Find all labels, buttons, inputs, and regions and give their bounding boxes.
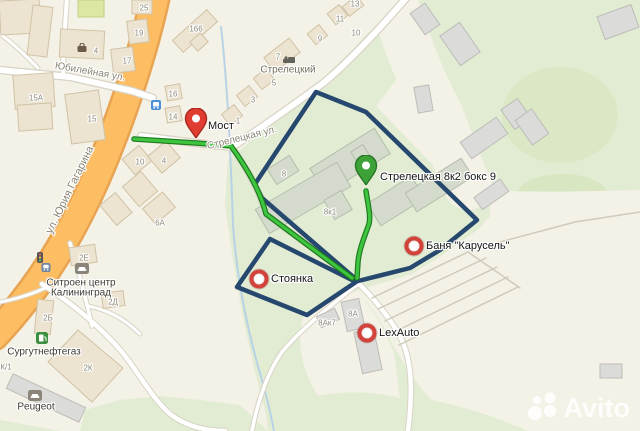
map-pin-target[interactable]: [354, 155, 378, 190]
poi-name-label: Калининград: [51, 288, 111, 299]
house-number-label: 15A: [29, 94, 43, 103]
watermark-text: Avito: [564, 393, 631, 424]
house-number-label: 14: [169, 113, 178, 122]
car-icon: [28, 388, 42, 406]
house-number-label: 16: [169, 90, 178, 99]
house-number-label: 166: [189, 25, 202, 34]
house-number-label: 4: [162, 157, 166, 166]
map-pin-most[interactable]: [184, 108, 208, 143]
house-number-label: 2Д: [108, 298, 118, 307]
house-number-label: 11: [336, 15, 344, 24]
house-number-label: 8к1: [324, 208, 336, 217]
house-number-label: 2Б: [43, 314, 53, 323]
house-number-label: 1: [236, 117, 240, 126]
house-number-label: 4: [94, 47, 98, 56]
map-ring-marker-stoyanka[interactable]: [250, 270, 269, 289]
house-number-label: 8: [282, 170, 286, 179]
marker-label-target[interactable]: Стрелецкая 8к2 бокс 9: [380, 171, 496, 183]
bus-icon: [42, 259, 51, 277]
map-overlay-layer: 2519174166161415A15131197531101046А88к12…: [0, 0, 640, 431]
house-number-label: 2К: [83, 364, 92, 373]
house-number-label: 13: [351, 0, 360, 9]
car-icon: [75, 261, 89, 279]
house-number-label: 5: [272, 79, 276, 88]
street-name-label: Юбилейная ул.: [54, 60, 126, 83]
bed-icon: [283, 51, 295, 69]
house-number-label: 17: [123, 57, 132, 66]
house-number-label: 25: [140, 4, 149, 13]
house-number-label: 10: [352, 29, 361, 38]
marker-label-lexauto[interactable]: LexAuto: [379, 327, 419, 339]
fuel-icon: [36, 331, 48, 349]
bag-icon: [77, 40, 88, 58]
marker-label-banya[interactable]: Баня "Карусель": [426, 240, 510, 252]
map-ring-marker-banya[interactable]: [405, 237, 424, 256]
marker-label-most[interactable]: Мост: [208, 120, 234, 132]
house-number-label: 8А: [348, 310, 358, 319]
house-number-label: 9: [318, 35, 322, 44]
street-name-label: ул. Юрия Гагарина: [44, 144, 97, 236]
house-number-label: К/1: [0, 363, 11, 372]
house-number-label: 3: [251, 96, 255, 105]
watermark: Avito: [526, 391, 631, 425]
house-number-label: 15: [88, 115, 97, 124]
house-number-label: 19: [135, 29, 144, 38]
map-canvas[interactable]: 2519174166161415A15131197531101046А88к12…: [0, 0, 640, 431]
house-number-label: 6А: [155, 219, 165, 228]
transit-icon: [151, 97, 161, 115]
house-number-label: 8Ак7: [318, 319, 336, 328]
avito-logo-icon: [526, 391, 560, 425]
house-number-label: 10: [136, 158, 145, 167]
house-number-label: 7: [276, 53, 280, 62]
map-ring-marker-lexauto[interactable]: [358, 324, 377, 343]
marker-label-stoyanka[interactable]: Стоянка: [271, 273, 313, 285]
